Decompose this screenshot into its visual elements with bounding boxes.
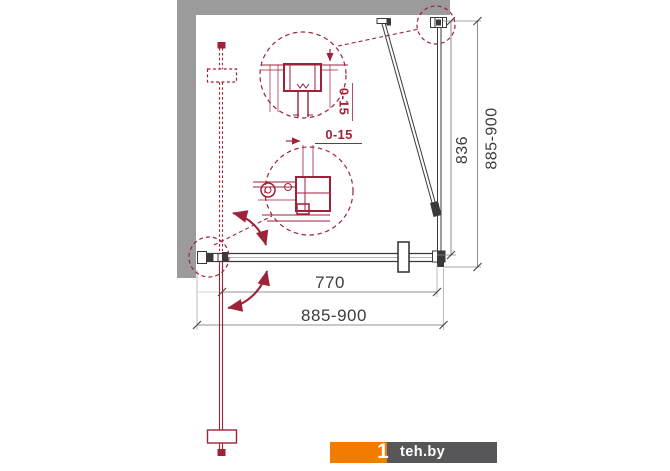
door-handle-outward (208, 430, 237, 443)
detail-circle-top (260, 32, 346, 118)
door-handle-plan (398, 242, 409, 272)
hinge-assembly (198, 252, 229, 264)
wall-left (177, 0, 196, 278)
red-detail-annotations (189, 6, 455, 456)
dim-label-overall-height: 885-900 (482, 96, 503, 182)
door-open-inward (208, 42, 237, 251)
dim-label-panel-height: 836 (453, 120, 473, 180)
adjust-label-top: 0-15 (337, 79, 352, 125)
door-open-outward (208, 262, 237, 456)
dim-label-door-width: 770 (300, 273, 360, 293)
dim-label-overall-width: 885-900 (289, 306, 379, 326)
door-handle-inward (208, 69, 237, 82)
detail-circle-hinge (265, 147, 353, 235)
detail-hinge-profile (253, 141, 362, 221)
logo-text: teh.by (387, 442, 445, 463)
enclosure-structure (197, 18, 447, 273)
corner-connector (433, 251, 446, 268)
walls (177, 0, 450, 278)
wall-top (196, 0, 450, 15)
adjust-label-side: 0-15 (315, 127, 363, 142)
logo-dark-block: teh.by (387, 442, 497, 463)
logo-mark-1: 1 (377, 440, 389, 464)
plan-drawing (0, 0, 670, 471)
door-swing-arrows (228, 213, 267, 308)
watermark-logo: teh.by 1 (330, 442, 497, 463)
product-technical-drawing: 836 885-900 770 885-900 0-15 0-15 teh.by… (0, 0, 670, 471)
